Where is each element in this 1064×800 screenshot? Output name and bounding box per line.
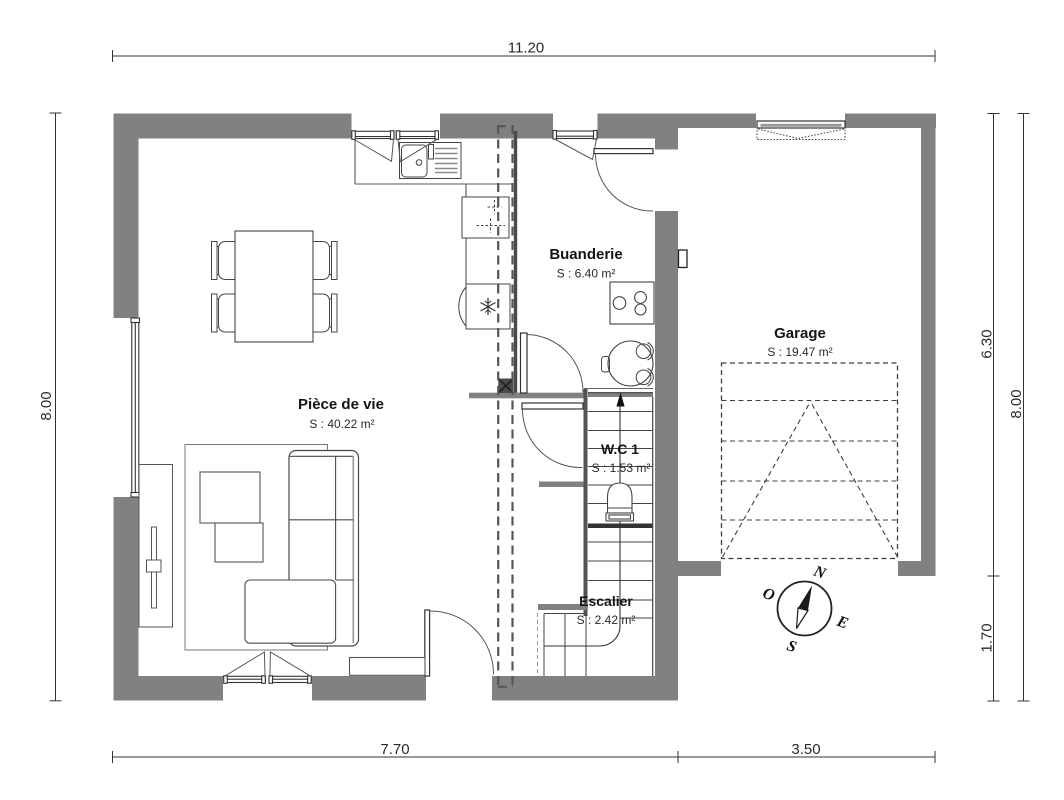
svg-text:3.50: 3.50 bbox=[791, 741, 820, 758]
svg-text:11.20: 11.20 bbox=[508, 40, 544, 57]
svg-text:E: E bbox=[834, 613, 851, 633]
svg-text:7.70: 7.70 bbox=[380, 741, 409, 758]
svg-text:8.00: 8.00 bbox=[1008, 389, 1025, 418]
svg-text:6.30: 6.30 bbox=[979, 329, 996, 358]
svg-text:Garage: Garage bbox=[774, 325, 826, 342]
svg-text:S : 19.47 m²: S : 19.47 m² bbox=[767, 345, 832, 359]
svg-text:W.C 1: W.C 1 bbox=[601, 441, 639, 457]
svg-text:S : 1.53 m²: S : 1.53 m² bbox=[592, 461, 651, 475]
svg-text:Buanderie: Buanderie bbox=[549, 246, 622, 263]
svg-text:S : 40.22 m²: S : 40.22 m² bbox=[309, 417, 374, 431]
svg-text:1.70: 1.70 bbox=[979, 623, 996, 652]
svg-text:8.00: 8.00 bbox=[38, 391, 55, 420]
svg-text:S : 6.40 m²: S : 6.40 m² bbox=[557, 267, 616, 281]
svg-text:Escalier: Escalier bbox=[579, 593, 633, 609]
svg-text:S: S bbox=[784, 637, 798, 656]
svg-text:N: N bbox=[810, 562, 829, 583]
svg-text:O: O bbox=[760, 585, 777, 605]
svg-text:Pièce de vie: Pièce de vie bbox=[298, 396, 384, 413]
svg-text:S : 2.42 m²: S : 2.42 m² bbox=[577, 613, 636, 627]
